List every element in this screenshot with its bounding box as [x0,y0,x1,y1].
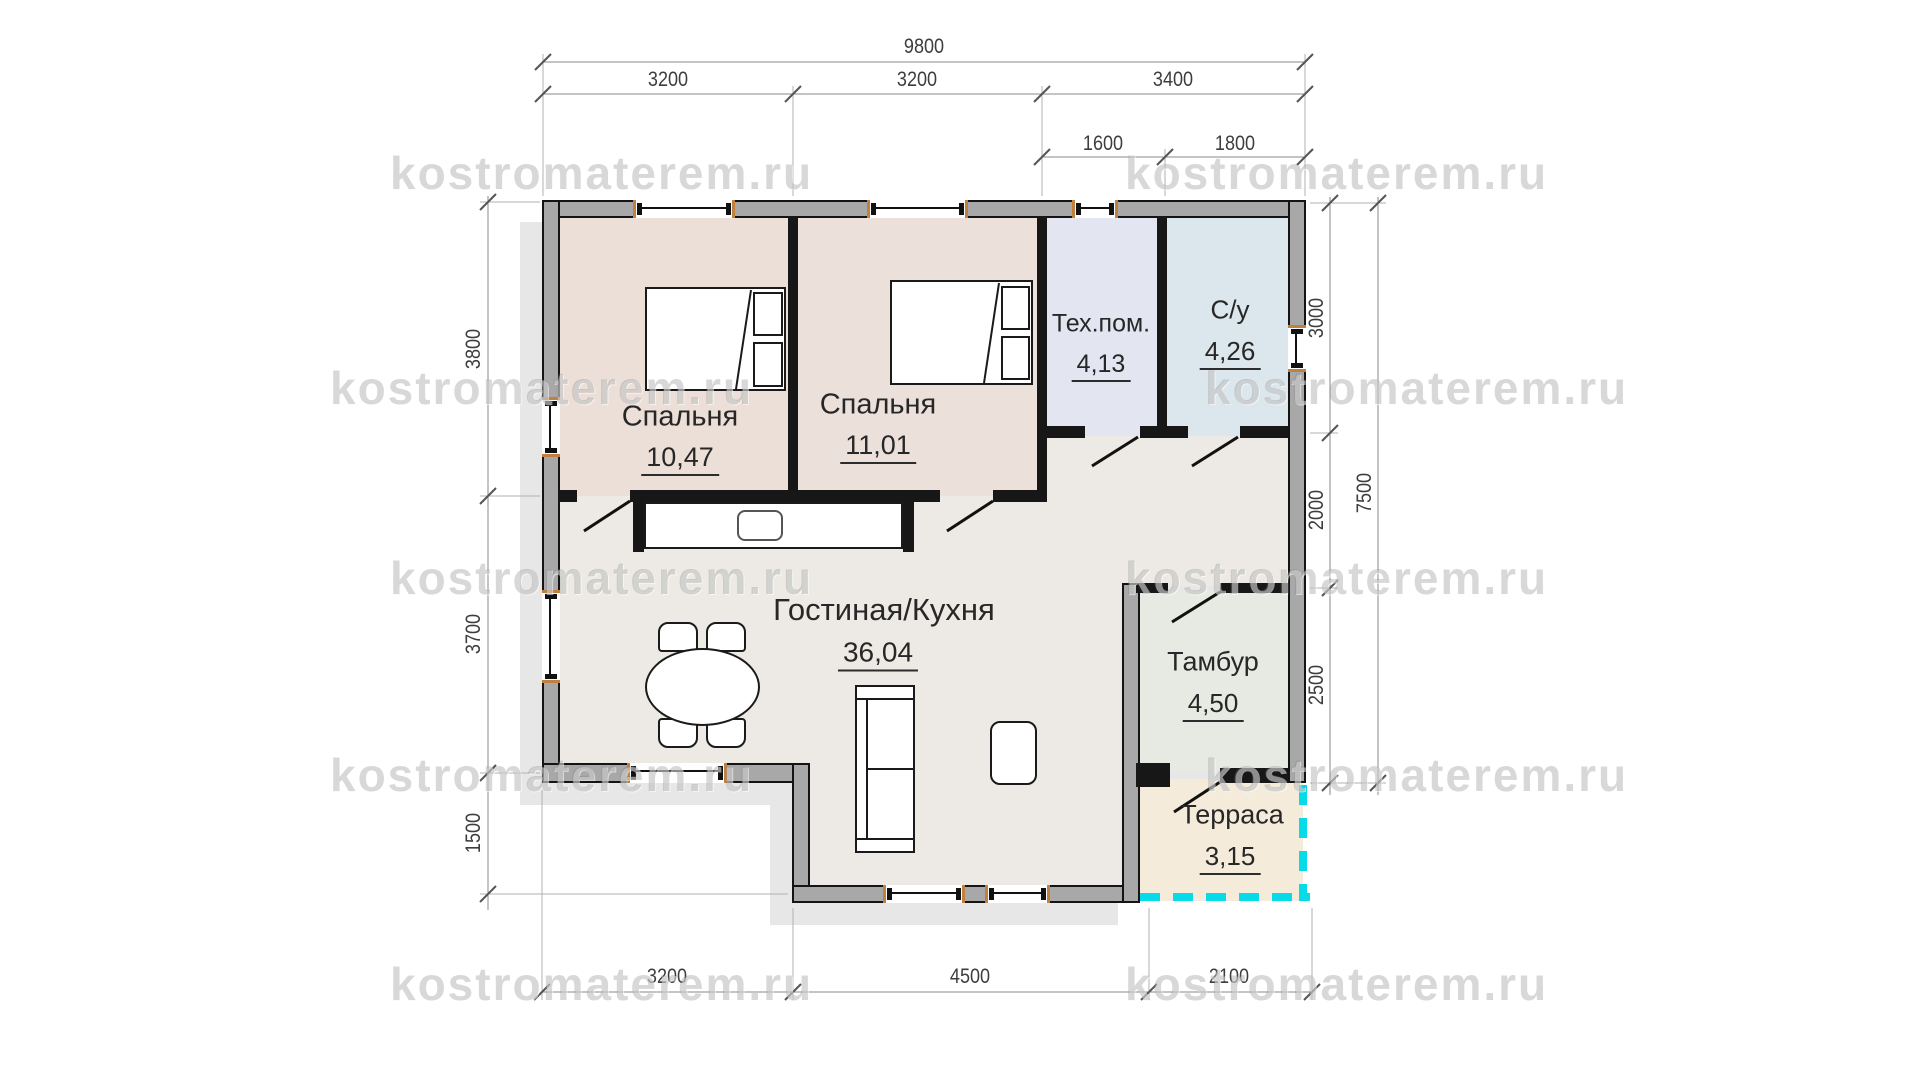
dim-top-seg-2: 3200 [897,68,937,92]
door-leaf-tech-room [1092,437,1138,466]
door-leaf-bedroom-2 [947,501,993,531]
dim-left-3: 1500 [462,813,486,853]
watermark-row5-right: kostromaterem.ru [1125,957,1548,1011]
dim-top-seg-1: 3200 [648,68,688,92]
room-label-vestibule: Тамбур [1167,647,1259,678]
bed-2-fold-line [984,283,999,383]
room-label-bathroom: С/у [1211,295,1250,326]
room-area-vestibule: 4,50 [1183,688,1244,722]
dim-right-3: 2500 [1305,665,1329,705]
dim-top-total: 9800 [904,35,944,59]
room-label-tech-room: Тех.пом. [1052,310,1150,339]
dim-top-sub-1: 1600 [1083,132,1123,156]
watermark-row3-right: kostromaterem.ru [1125,551,1548,605]
watermark-row1-left: kostromaterem.ru [390,146,813,200]
door-leaf-bedroom-1 [584,501,630,531]
room-label-terrace: Терраса [1180,800,1284,831]
room-area-bedroom-1: 10,47 [641,442,719,476]
watermark-row5-left: kostromaterem.ru [390,957,813,1011]
room-area-bedroom-2: 11,01 [840,430,916,464]
room-label-bedroom-2: Спальня [820,389,937,422]
watermark-row2-left: kostromaterem.ru [330,361,753,415]
floor-plan-canvas: Спальня 10,47 Спальня 11,01 Тех.пом. 4,1… [0,0,1920,1080]
watermark-row3-left: kostromaterem.ru [390,551,813,605]
dim-right-total: 7500 [1353,473,1377,513]
watermark-row2-right: kostromaterem.ru [1205,361,1628,415]
dim-bottom-2: 4500 [950,965,990,989]
room-area-tech-room: 4,13 [1072,350,1131,382]
dim-top-seg-3: 3400 [1153,68,1193,92]
room-area-living-kitchen: 36,04 [838,637,918,672]
dim-right-1: 3000 [1305,298,1329,338]
watermark-row4-left: kostromaterem.ru [330,748,753,802]
door-leaf-bathroom [1192,437,1238,466]
linework-overlay [0,0,1920,1080]
watermark-row4-right: kostromaterem.ru [1205,748,1628,802]
room-area-terrace: 3,15 [1200,841,1261,875]
dim-left-2: 3700 [462,614,486,654]
watermark-row1-right: kostromaterem.ru [1125,146,1548,200]
dim-right-2: 2000 [1305,490,1329,530]
